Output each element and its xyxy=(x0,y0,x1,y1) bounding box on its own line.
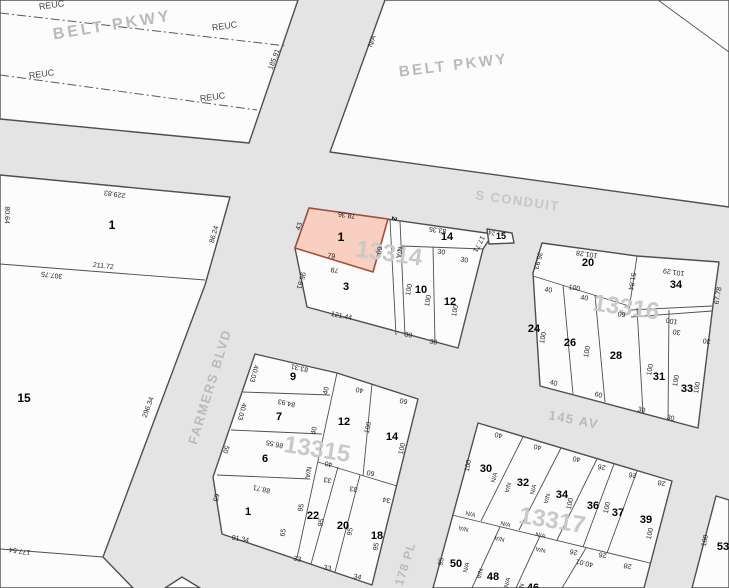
dim-label: 30 xyxy=(672,327,681,335)
lot-number-13317-36: 36 xyxy=(587,500,599,512)
parcel-map: BELT PKWYBELT PKWYS CONDUITFARMERS BLVD1… xyxy=(0,0,729,588)
dim-label: 30 xyxy=(460,256,469,264)
dim-label: 40 xyxy=(544,286,553,294)
lot-number-13315-1: 1 xyxy=(245,506,251,518)
lot-number-13315-14: 14 xyxy=(386,431,399,443)
lot-number-13315-7: 7 xyxy=(276,411,282,423)
dim-label: 79 xyxy=(327,252,336,260)
lot-number-13314-15: 15 xyxy=(496,231,506,241)
dim-label: 30 xyxy=(437,248,446,256)
lot-number-13316-24: 24 xyxy=(528,323,541,335)
dim-label: 79 xyxy=(330,265,339,273)
lot-number-13315-9: 9 xyxy=(290,371,296,383)
lot-number-13317-30: 30 xyxy=(480,463,492,475)
map-canvas: BELT PKWYBELT PKWYS CONDUITFARMERS BLVD1… xyxy=(0,0,729,588)
lot-number-13317-37: 37 xyxy=(612,507,624,519)
lot-number-13316-31: 31 xyxy=(653,371,665,383)
lot-number-13317-50: 50 xyxy=(450,558,462,570)
dim-label: 30 xyxy=(702,336,711,344)
lot-number-west-1: 1 xyxy=(109,218,116,232)
lot-number-13316-20: 20 xyxy=(582,257,594,269)
lot-number-13314-10: 10 xyxy=(415,284,427,296)
lot-number-53: 53 xyxy=(717,541,729,553)
lot-number-13314-3: 3 xyxy=(343,281,349,293)
dim-label: 60 xyxy=(374,246,382,255)
lot-number-13317-39: 39 xyxy=(640,514,652,526)
lot-number-13317-48: 48 xyxy=(487,571,499,583)
lot-number-13315-6: 6 xyxy=(262,453,268,465)
lot-number-13315-12: 12 xyxy=(338,416,350,428)
lot-number-west-15: 15 xyxy=(17,391,31,405)
lot-number-13317-32: 32 xyxy=(517,477,529,489)
lot-number-13315-22: 22 xyxy=(307,510,319,522)
lot-number-13317-46: 46 xyxy=(527,582,539,588)
lot-number-13316-34: 34 xyxy=(670,279,683,291)
lot-number-13315-18: 18 xyxy=(371,530,383,542)
lot-number-13314-1: 1 xyxy=(338,230,345,244)
lot-number-13316-28: 28 xyxy=(610,350,622,362)
dim-label: 60 xyxy=(617,309,626,317)
lot-number-13316-26: 26 xyxy=(564,337,576,349)
dim-label: 80.64 xyxy=(3,206,11,224)
dim-label: 40 xyxy=(580,294,589,302)
lot-number-13316-33: 33 xyxy=(681,383,693,395)
